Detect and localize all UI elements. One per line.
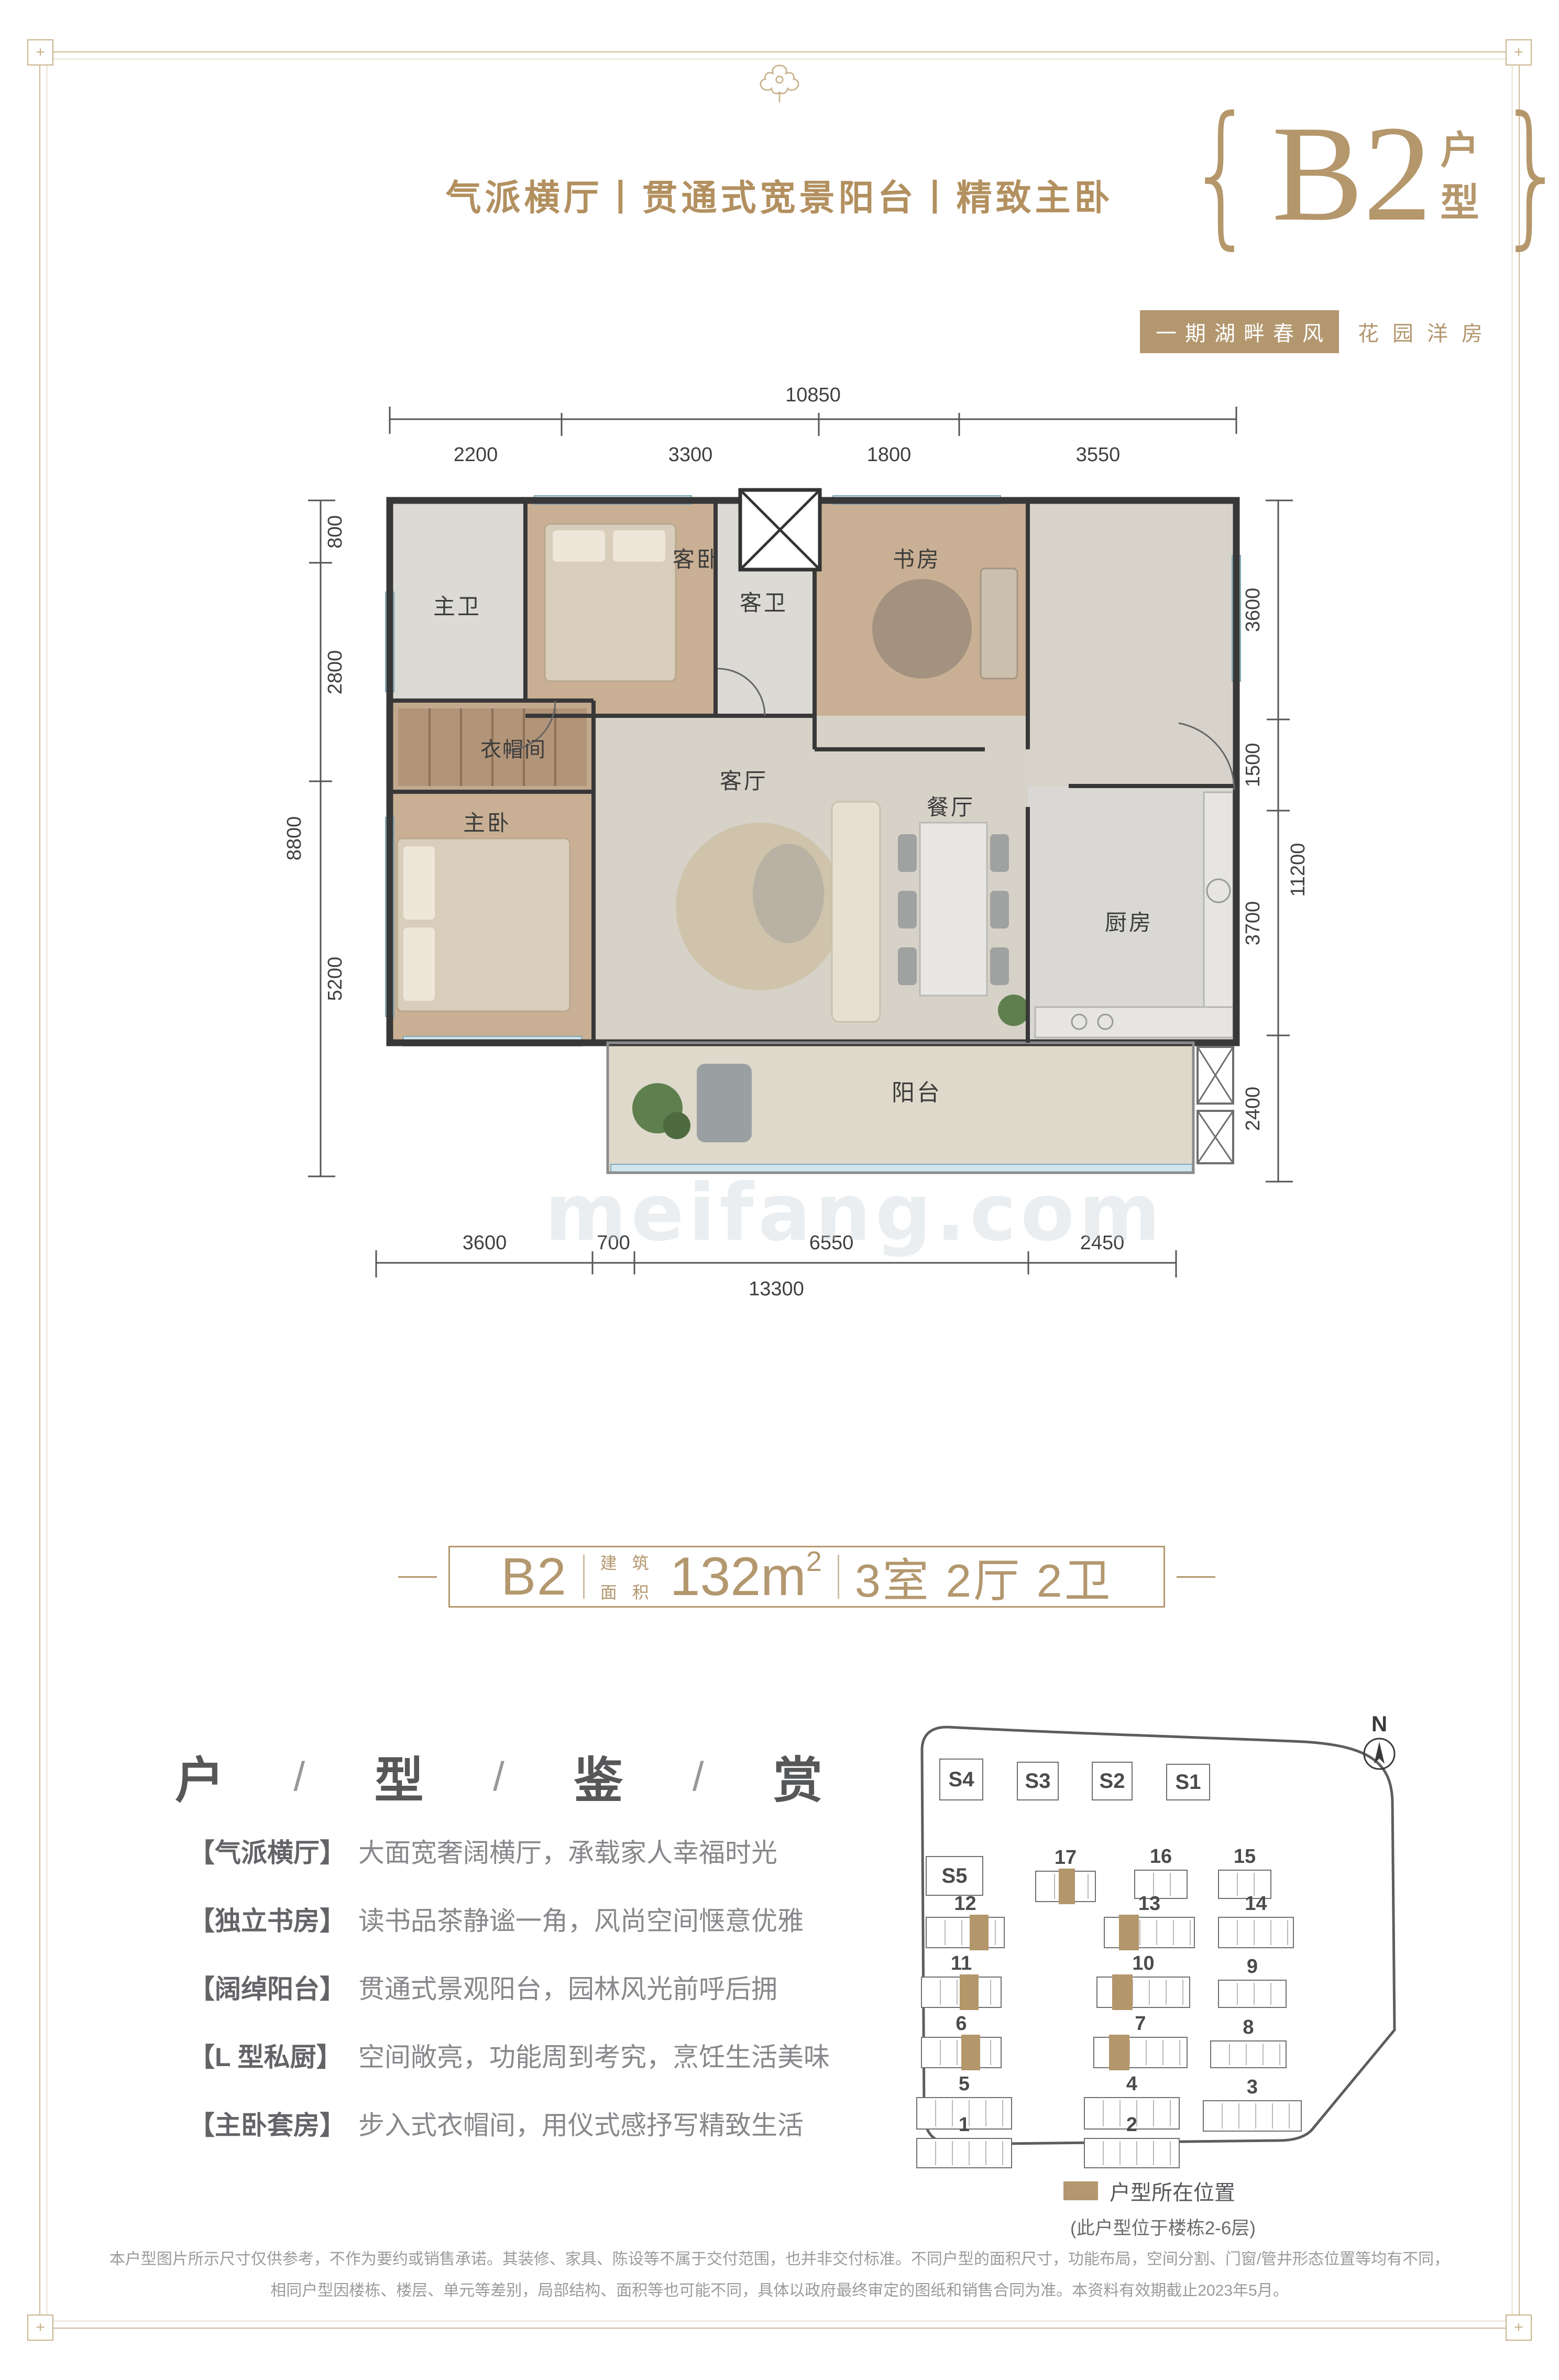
heading-char: 赏 bbox=[773, 1741, 822, 1812]
feature-desc: 读书品茶静谧一角，风尚空间惬意优雅 bbox=[358, 1900, 804, 1938]
site-building-highlighted: 10 bbox=[1096, 1977, 1190, 2008]
dim-left-total: 8800 bbox=[283, 816, 305, 861]
dim-top-seg: 3550 bbox=[1076, 444, 1121, 466]
dim-top-seg: 1800 bbox=[867, 444, 912, 466]
heading-separator: / bbox=[493, 1753, 504, 1800]
frame-corner-ornament bbox=[1506, 2315, 1532, 2341]
summary-banner: B2 建 筑 面 积 132m2 3室 2厅 2卫 bbox=[398, 1546, 1215, 1608]
building-label: 7 bbox=[1094, 2013, 1187, 2035]
building-label: 13 bbox=[1105, 1893, 1194, 1915]
banner-divider bbox=[838, 1555, 839, 1599]
site-building: S4 bbox=[939, 1759, 983, 1800]
heading-separator: / bbox=[294, 1753, 305, 1800]
site-building-highlighted: 12 bbox=[926, 1917, 1005, 1948]
dim-left-seg: 5200 bbox=[324, 957, 346, 1001]
banner-area-label: 建 筑 面 积 bbox=[600, 1550, 654, 1603]
building-label: 1 bbox=[917, 2114, 1011, 2136]
highlight-unit bbox=[960, 1974, 979, 2010]
dim-right-seg: 3600 bbox=[1242, 588, 1264, 632]
dim-top-seg: 2200 bbox=[454, 444, 498, 466]
dim-right-seg: 3700 bbox=[1242, 901, 1264, 946]
room-label-closet: 衣帽间 bbox=[480, 738, 546, 761]
highlight-unit bbox=[970, 1915, 988, 1950]
dim-right-total: 11200 bbox=[1287, 843, 1309, 897]
room-label-dining: 餐厅 bbox=[927, 795, 975, 820]
feature-tag: 【阔绰阳台】 bbox=[189, 1968, 358, 2006]
highlight-unit bbox=[1059, 1869, 1075, 1904]
dim-bottom-seg: 3600 bbox=[463, 1232, 507, 1254]
feature-row: 【L 型私厨】 空间敞亮，功能周到考究，烹饪生活美味 bbox=[189, 2036, 830, 2074]
heading-char: 户 bbox=[175, 1741, 224, 1812]
site-building: 1 bbox=[916, 2138, 1012, 2168]
feature-row: 【气派横厅】 大面宽奢阔横厅，承载家人幸福时光 bbox=[189, 1832, 777, 1870]
banner-dash-right bbox=[1177, 1576, 1215, 1578]
feature-tag: 【气派横厅】 bbox=[189, 1832, 358, 1870]
unit-suffix-char: 户 bbox=[1440, 131, 1479, 170]
building-label: 8 bbox=[1211, 2016, 1286, 2039]
feature-desc: 贯通式景观阳台，园林风光前呼后拥 bbox=[358, 1968, 777, 2006]
building-label: S1 bbox=[1167, 1765, 1209, 1799]
building-label: S4 bbox=[940, 1760, 982, 1799]
building-label: 3 bbox=[1204, 2076, 1301, 2099]
heading-separator: / bbox=[693, 1753, 704, 1800]
project-phase-badge: 一期湖畔春风 bbox=[1140, 310, 1339, 353]
banner-unit-code: B2 bbox=[501, 1547, 567, 1607]
area-label-line2: 面 积 bbox=[600, 1579, 654, 1603]
room-label-living: 客厅 bbox=[720, 769, 768, 793]
project-type-label: 花园洋房 bbox=[1358, 316, 1496, 347]
frame-corner-ornament bbox=[27, 39, 53, 65]
site-building: 9 bbox=[1218, 1980, 1287, 2008]
building-label: 12 bbox=[927, 1893, 1004, 1915]
unit-type-mark: { B2 户 型 } bbox=[1172, 95, 1559, 253]
site-building: 8 bbox=[1210, 2040, 1287, 2068]
building-label: 15 bbox=[1219, 1846, 1270, 1868]
building-label: 2 bbox=[1085, 2114, 1179, 2136]
site-building: S2 bbox=[1092, 1762, 1133, 1800]
room-label-study: 书房 bbox=[893, 547, 941, 572]
banner-area-value: 132m2 bbox=[670, 1545, 822, 1608]
feature-desc: 大面宽奢阔横厅，承载家人幸福时光 bbox=[358, 1832, 777, 1870]
unit-code: B2 bbox=[1272, 112, 1432, 236]
dim-top-seg: 3300 bbox=[668, 444, 713, 466]
heading-char: 鉴 bbox=[574, 1741, 623, 1812]
brochure-page: 气派横厅丨贯通式宽景阳台丨精致主卧 { B2 户 型 } 一期湖畔春风 花园洋房 bbox=[0, 0, 1559, 2380]
building-label: 11 bbox=[922, 1952, 1001, 1975]
site-building: S3 bbox=[1017, 1762, 1059, 1800]
cloud-ornament-icon bbox=[756, 59, 803, 112]
highlight-unit bbox=[1119, 1915, 1138, 1950]
dim-right-seg: 1500 bbox=[1242, 743, 1264, 788]
room-label-guest-bath: 客卫 bbox=[740, 591, 788, 615]
building-label: S3 bbox=[1018, 1763, 1058, 1799]
room-label-guest-bed: 客卧 bbox=[673, 547, 721, 572]
building-label: 17 bbox=[1036, 1847, 1095, 1869]
building-label: 6 bbox=[922, 2013, 1001, 2035]
project-badge: 一期湖畔春风 花园洋房 bbox=[1140, 310, 1496, 353]
heading-char: 型 bbox=[375, 1741, 424, 1812]
banner-room-config: 3室 2厅 2卫 bbox=[855, 1544, 1113, 1610]
site-watermark: meifang.com bbox=[545, 1167, 1165, 1259]
site-legend: 户型所在位置 bbox=[1063, 2176, 1235, 2206]
site-building: 14 bbox=[1218, 1917, 1294, 1948]
legend-note: (此户型位于楼栋2-6层) bbox=[1016, 2213, 1310, 2240]
room-label-balcony: 阳台 bbox=[892, 1080, 942, 1106]
building-label: S2 bbox=[1093, 1763, 1132, 1799]
section-underline bbox=[175, 1794, 822, 1796]
north-arrow-icon bbox=[1362, 1737, 1397, 1771]
section-heading: 户 / 型 / 鉴 / 赏 bbox=[175, 1741, 822, 1812]
highlight-unit bbox=[1112, 1974, 1133, 2010]
feature-desc: 步入式衣帽间，用仪式感抒写精致生活 bbox=[358, 2104, 804, 2142]
dim-right-seg: 2400 bbox=[1242, 1087, 1264, 1131]
feature-tag: 【L 型私厨】 bbox=[189, 2036, 358, 2074]
building-label: 10 bbox=[1097, 1952, 1189, 1975]
dim-bottom-total: 13300 bbox=[749, 1278, 804, 1300]
site-building-highlighted: 13 bbox=[1104, 1917, 1195, 1948]
feature-row: 【阔绰阳台】 贯通式景观阳台，园林风光前呼后拥 bbox=[189, 1968, 777, 2006]
unit-suffix-char: 型 bbox=[1440, 183, 1479, 222]
room-label-master-bath: 主卫 bbox=[433, 594, 481, 619]
legend-label: 户型所在位置 bbox=[1110, 2176, 1235, 2206]
legend-swatch bbox=[1063, 2181, 1098, 2200]
disclaimer-line-1: 本户型图片所示尺寸仅供参考，不作为要约或销售承诺。其装修、家具、陈设等不属于交付… bbox=[0, 2246, 1559, 2269]
feature-row: 【主卧套房】 步入式衣帽间，用仪式感抒写精致生活 bbox=[189, 2104, 804, 2142]
banner-dash-left bbox=[398, 1576, 437, 1578]
site-building: S1 bbox=[1166, 1764, 1210, 1800]
room-label-kitchen: 厨房 bbox=[1105, 910, 1153, 935]
room-label-master-bed: 主卧 bbox=[463, 811, 511, 835]
site-building: 2 bbox=[1084, 2138, 1180, 2168]
site-building: 3 bbox=[1203, 2100, 1302, 2132]
building-label: 4 bbox=[1085, 2073, 1179, 2095]
dim-left-seg: 800 bbox=[324, 515, 346, 548]
site-building-highlighted: 11 bbox=[921, 1977, 1002, 2008]
feature-tag: 【独立书房】 bbox=[189, 1900, 358, 1938]
frame-corner-ornament bbox=[1506, 39, 1532, 65]
site-building-highlighted: 7 bbox=[1093, 2037, 1188, 2068]
building-label: 16 bbox=[1135, 1846, 1187, 1868]
north-compass: N bbox=[1361, 1711, 1398, 1774]
area-number: 132m bbox=[670, 1546, 806, 1607]
north-label: N bbox=[1361, 1711, 1398, 1737]
building-label: 14 bbox=[1219, 1893, 1293, 1915]
feature-row: 【独立书房】 读书品茶静谧一角，风尚空间惬意优雅 bbox=[189, 1900, 804, 1938]
dim-left-seg: 2800 bbox=[324, 650, 346, 695]
banner-divider bbox=[583, 1555, 585, 1599]
brace-right: } bbox=[1497, 104, 1559, 244]
dim-top-total: 10850 bbox=[785, 384, 841, 406]
feature-desc: 空间敞亮，功能周到考究，烹饪生活美味 bbox=[358, 2036, 830, 2074]
feature-tag: 【主卧套房】 bbox=[189, 2104, 358, 2142]
highlight-unit bbox=[1109, 2035, 1129, 2070]
site-building: S5 bbox=[926, 1856, 983, 1896]
building-label: 5 bbox=[917, 2073, 1011, 2095]
highlight-unit bbox=[961, 2035, 980, 2070]
area-label-line1: 建 筑 bbox=[600, 1550, 654, 1574]
building-label: S5 bbox=[927, 1857, 982, 1895]
disclaimer-line-2: 相同户型因楼栋、楼层、单元等差别，局部结构、面积等也可能不同，具体以政府最终审定… bbox=[0, 2277, 1559, 2300]
frame-corner-ornament bbox=[27, 2315, 53, 2341]
site-building-highlighted: 17 bbox=[1035, 1871, 1096, 1902]
brace-left: { bbox=[1186, 104, 1257, 244]
building-label: 9 bbox=[1219, 1956, 1286, 1978]
summary-banner-box: B2 建 筑 面 积 132m2 3室 2厅 2卫 bbox=[448, 1546, 1165, 1608]
area-superscript: 2 bbox=[806, 1546, 822, 1577]
site-building-highlighted: 6 bbox=[921, 2037, 1002, 2068]
